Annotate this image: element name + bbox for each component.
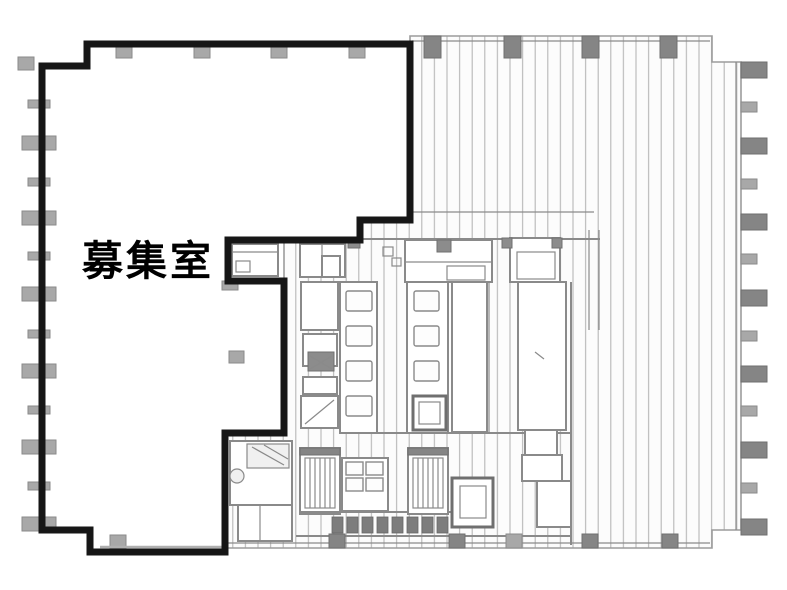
elevator-bank-right — [407, 282, 448, 433]
floor-plan-drawing — [0, 0, 787, 590]
stairwell-1 — [300, 448, 340, 514]
floor-plan: 募集室 — [0, 0, 787, 590]
perimeter-columns-left — [18, 57, 56, 531]
core-bottom-rooms — [230, 441, 292, 541]
stairwell-2 — [408, 448, 448, 514]
elevator-bank-left — [340, 282, 377, 433]
perimeter-columns-right — [741, 62, 767, 535]
core-service-stack — [301, 282, 338, 428]
available-room-label: 募集室 — [82, 241, 214, 282]
freight-elevator — [452, 478, 493, 527]
